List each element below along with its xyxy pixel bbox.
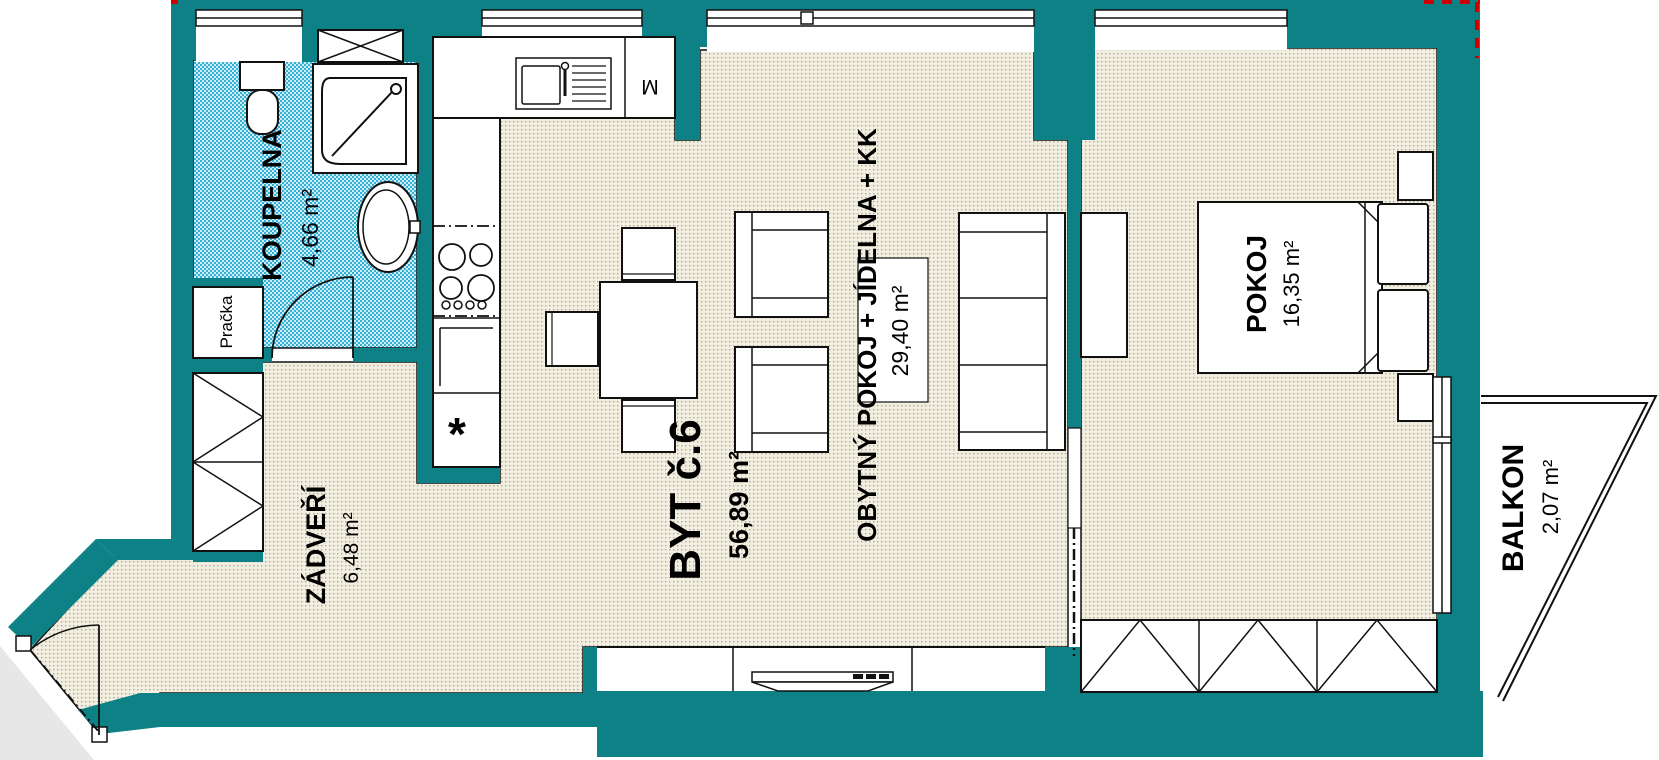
bedroom-wardrobe <box>1081 620 1437 692</box>
floorplan-page: KOUPELNA 4,66 m² Pračka ZÁDVEŘÍ 6,48 m² … <box>0 0 1659 760</box>
wall-hall-closet-top <box>193 362 263 373</box>
sofa <box>959 213 1065 450</box>
room-label-obytny: OBYTNÝ POKOJ + JÍDELNA + KK <box>852 128 882 542</box>
washbasin-inner <box>363 190 409 264</box>
nightstand <box>1398 152 1433 200</box>
room-area-obytny: 29,40 m² <box>887 285 913 376</box>
wall-left <box>171 0 193 539</box>
door-pocket <box>1068 428 1081 528</box>
washer-label: Pračka <box>217 295 236 348</box>
wall-bathroom-right <box>417 26 433 483</box>
wall-bottom-right <box>597 691 1483 757</box>
freezer-label: * <box>448 408 466 460</box>
flat-title: BYT č.6 <box>661 419 710 580</box>
window-reveal-bathroom <box>196 26 302 62</box>
armchair <box>735 347 828 452</box>
wall-window-jamb <box>583 647 597 693</box>
flat-title-area: 56,89 m² <box>724 451 754 559</box>
room-area-balkon: 2,07 m² <box>1538 460 1563 535</box>
toilet-bowl <box>247 90 278 134</box>
hall-wardrobe <box>193 373 263 551</box>
armchair <box>735 212 828 317</box>
bedroom-cabinet <box>1081 213 1127 357</box>
toilet-tank <box>240 62 284 90</box>
wall-divider-stub <box>1045 647 1081 693</box>
chair <box>546 312 598 366</box>
shower-drain <box>391 84 401 94</box>
room-label-koupelna: KOUPELNA <box>257 129 287 281</box>
pillow <box>1378 290 1428 371</box>
wall-divider <box>1068 48 1081 430</box>
nightstand <box>1398 374 1433 421</box>
chair <box>622 228 675 280</box>
dining-table <box>600 282 697 398</box>
window-mullion <box>801 12 813 24</box>
floorplan-drawing: KOUPELNA 4,66 m² Pračka ZÁDVEŘÍ 6,48 m² … <box>0 0 1659 760</box>
radiator <box>752 672 893 691</box>
kitchen-counter-column <box>433 118 500 467</box>
wall-top-kitchen-left <box>403 0 482 37</box>
room-area-zadveri: 6,48 m² <box>340 512 363 583</box>
wall-top-kitchen-right <box>642 0 675 37</box>
room-label-zadveri: ZÁDVEŘÍ <box>300 484 331 604</box>
wall-bottom-left <box>155 693 602 727</box>
room-label-balkon: BALKON <box>1497 444 1530 572</box>
wall-pillar-kitchen <box>675 0 700 140</box>
room-label-pokoj: POKOJ <box>1241 235 1272 333</box>
window-reveal-bedroom <box>1095 26 1287 50</box>
room-area-koupelna: 4,66 m² <box>297 189 323 267</box>
wall-hall-closet-bottom <box>193 551 263 562</box>
washbasin-faucet <box>410 221 420 233</box>
dishwasher-label: M <box>641 75 659 98</box>
door-jamb <box>16 636 31 651</box>
sink-basin <box>522 66 560 104</box>
window-reveal-living <box>707 26 1034 52</box>
wall-kitchen-end <box>429 467 500 483</box>
bottom-window <box>597 647 1045 691</box>
sink-faucet-knob <box>562 63 569 70</box>
room-area-pokoj: 16,35 m² <box>1279 241 1304 328</box>
vent-shaft <box>318 30 403 62</box>
wall-pillar-living-bedroom <box>1034 0 1095 140</box>
balcony-door <box>1433 377 1451 613</box>
balcony-door-mullion <box>1433 437 1451 443</box>
wall-washer-separator <box>193 278 263 287</box>
pillow <box>1378 204 1428 284</box>
wall-bathroom-bottom-right <box>353 348 417 362</box>
